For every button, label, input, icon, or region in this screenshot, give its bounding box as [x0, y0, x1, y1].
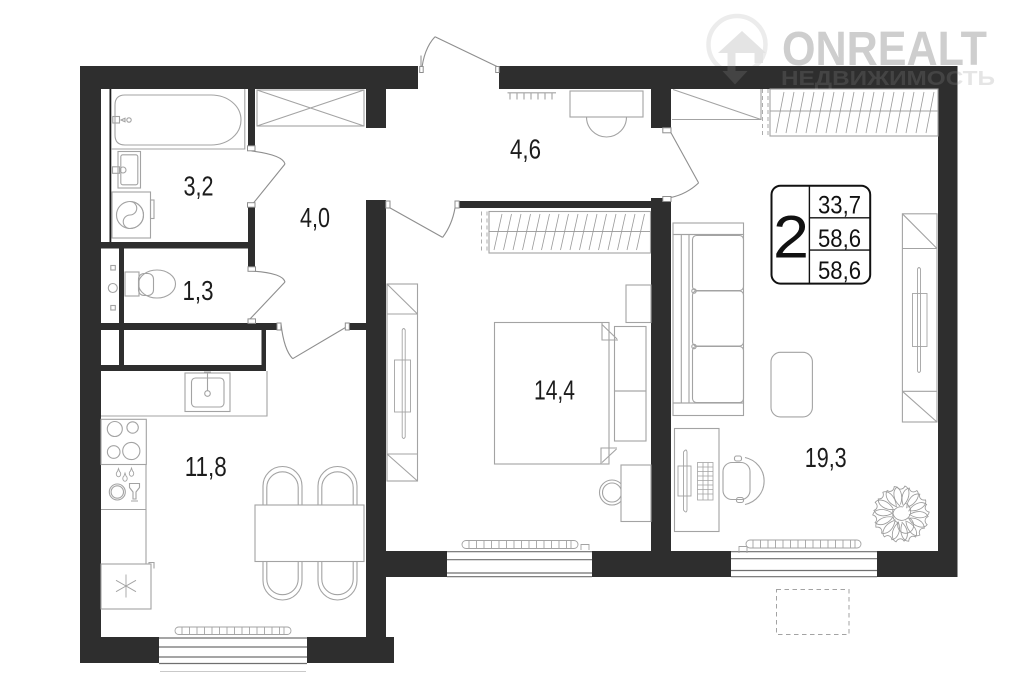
svg-text:58,6: 58,6 [818, 225, 861, 253]
svg-text:ONREALT: ONREALT [782, 23, 987, 76]
svg-text:19,3: 19,3 [805, 442, 847, 473]
svg-text:58,6: 58,6 [818, 257, 861, 285]
svg-text:2: 2 [773, 204, 809, 271]
svg-text:1,3: 1,3 [183, 275, 214, 306]
svg-text:14,4: 14,4 [534, 375, 575, 406]
svg-text:4,6: 4,6 [510, 134, 541, 165]
svg-text:11,8: 11,8 [185, 451, 227, 482]
svg-text:3,2: 3,2 [184, 171, 214, 202]
svg-text:33,7: 33,7 [818, 192, 861, 220]
svg-text:4,0: 4,0 [300, 202, 330, 233]
